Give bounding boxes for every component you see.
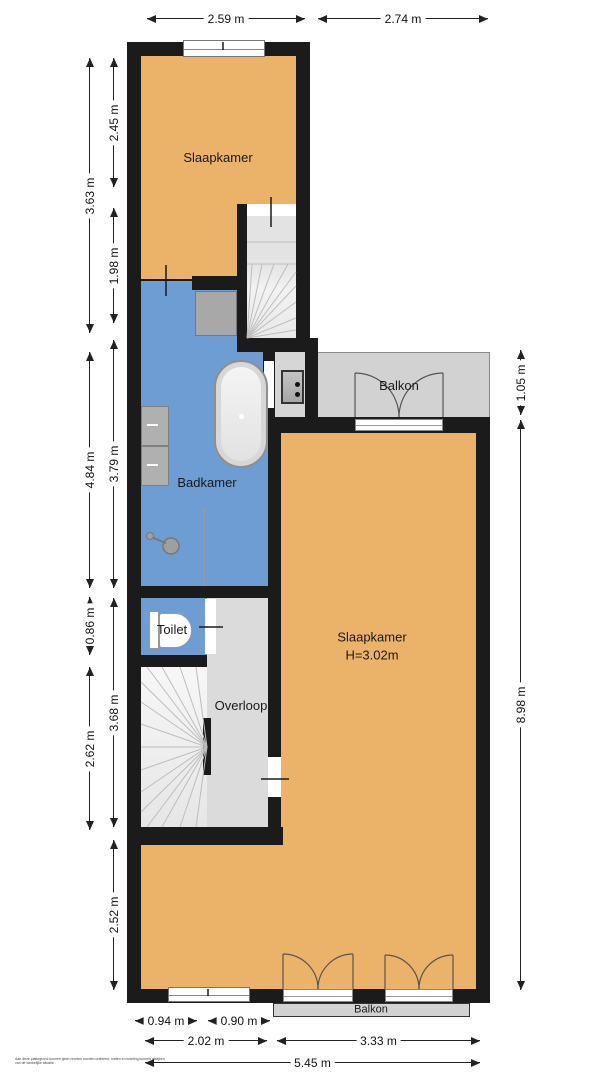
wall-landing-south	[141, 827, 283, 845]
dim-left-outer-3: 0.86 m	[89, 597, 90, 655]
niche-washbasin	[281, 370, 304, 404]
wall-toilet-south	[141, 655, 207, 667]
dim-left-inner-4: 3.68 m	[113, 598, 114, 827]
dim-left-outer-1: 3.63 m	[89, 58, 90, 333]
wall-niche-balcony	[305, 352, 318, 417]
label-landing: Overloop	[215, 697, 268, 715]
wall-right-outer	[476, 417, 490, 1003]
disclaimer-text: Aan deze plattegrond kunnen geen rechten…	[15, 1058, 165, 1066]
washbasin-faucet-dot-1	[295, 382, 300, 387]
floor-plan: Slaapkamer Badkamer Toilet Overloop Slaa…	[0, 0, 608, 1080]
dim-bottom-total: 5.45 m	[145, 1062, 480, 1063]
staircase-upper	[247, 216, 296, 338]
landing-door-gap	[268, 757, 281, 797]
opening-line-bedroom-bathroom	[141, 279, 192, 281]
balcony-bottom-door-sill-1	[283, 989, 353, 1002]
dim-bottom-small-2: 0.90 m	[208, 1020, 270, 1021]
window-bottom	[168, 987, 250, 1002]
label-balcony-bottom: Balkon	[354, 1003, 388, 1018]
appliance-shower-unit	[195, 291, 237, 336]
bathtub	[214, 360, 268, 468]
balcony-bottom-door-sill-2	[385, 989, 453, 1002]
dim-left-inner-1: 2.45 m	[113, 58, 114, 187]
dim-left-inner-2: 1.98 m	[113, 208, 114, 323]
label-balcony-top: Balkon	[379, 377, 419, 395]
dim-left-outer-2: 4.84 m	[89, 352, 90, 588]
toilet-door-gap	[205, 599, 216, 654]
dim-bottom-mid-2: 3.33 m	[277, 1040, 480, 1041]
dim-top-left: 2.59 m	[147, 18, 305, 19]
label-bedroom-top: Slaapkamer	[183, 149, 252, 167]
dim-left-inner-5: 2.52 m	[113, 840, 114, 990]
dim-bottom-mid-1: 2.02 m	[145, 1040, 267, 1041]
dim-top-right: 2.74 m	[318, 18, 488, 19]
dim-left-inner-3: 3.79 m	[113, 340, 114, 588]
wall-bathroom-south	[141, 586, 281, 598]
label-bedroom-main: Slaapkamer H=3.02m	[337, 628, 406, 663]
wall-bedroom-bathroom	[192, 276, 247, 290]
wall-left-outer	[127, 42, 141, 1003]
dim-left-outer-4: 2.62 m	[89, 667, 90, 830]
staircase-lower	[141, 667, 207, 827]
room-bedroom-top-floor	[141, 56, 296, 204]
vanity-faucet-2	[147, 464, 158, 466]
balcony-top-door-sill	[355, 419, 443, 431]
room-bedroom-main-floor-lower	[141, 845, 476, 989]
room-bedroom-top-floor-lower	[141, 204, 237, 280]
stairwell-door-gap	[247, 204, 296, 216]
label-toilet: Toilet	[157, 621, 187, 639]
vanity-sink-1	[141, 406, 169, 446]
vanity-faucet-1	[147, 424, 158, 426]
dim-right-2: 8.98 m	[520, 420, 521, 990]
label-bathroom: Badkamer	[177, 474, 236, 492]
dim-bottom-small-1: 0.94 m	[135, 1020, 197, 1021]
wall-stairwell-bottom	[237, 338, 318, 352]
bathtub-drain	[239, 414, 244, 419]
vanity-sink-2	[141, 446, 169, 486]
wall-right-upper	[296, 56, 310, 352]
washbasin-faucet-dot-2	[295, 392, 300, 397]
stair-newel-wall	[203, 718, 211, 775]
window-top	[183, 40, 265, 57]
dim-right-1: 1.05 m	[520, 350, 521, 415]
